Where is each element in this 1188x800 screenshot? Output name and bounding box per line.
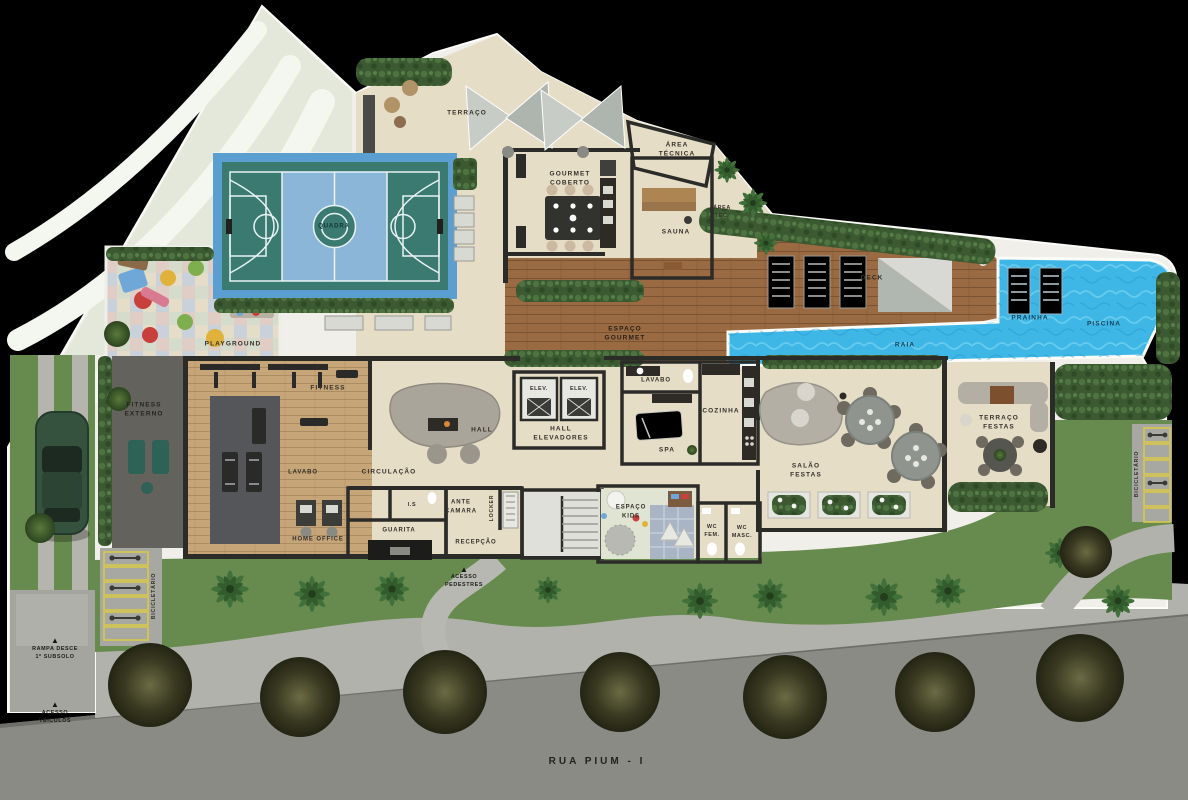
bike-parking-right	[1132, 424, 1172, 522]
flower-planters	[768, 492, 910, 518]
site-plan: TERRAÇO GOURMET COBERTO ÁREA TÉCNICA SAU…	[0, 0, 1188, 800]
sports-court	[213, 153, 457, 299]
gym-equipment-zone	[185, 358, 372, 556]
outdoor-fitness	[112, 356, 185, 548]
stairs	[524, 492, 600, 556]
kids-room	[601, 489, 695, 559]
plan-graphics	[0, 0, 1188, 800]
up-arrow-icon: ▲	[51, 637, 59, 645]
planter	[453, 158, 477, 190]
up-arrow-icon: ▲	[460, 566, 468, 574]
bike-parking-left	[100, 548, 162, 646]
up-arrow-icon: ▲	[51, 701, 59, 709]
